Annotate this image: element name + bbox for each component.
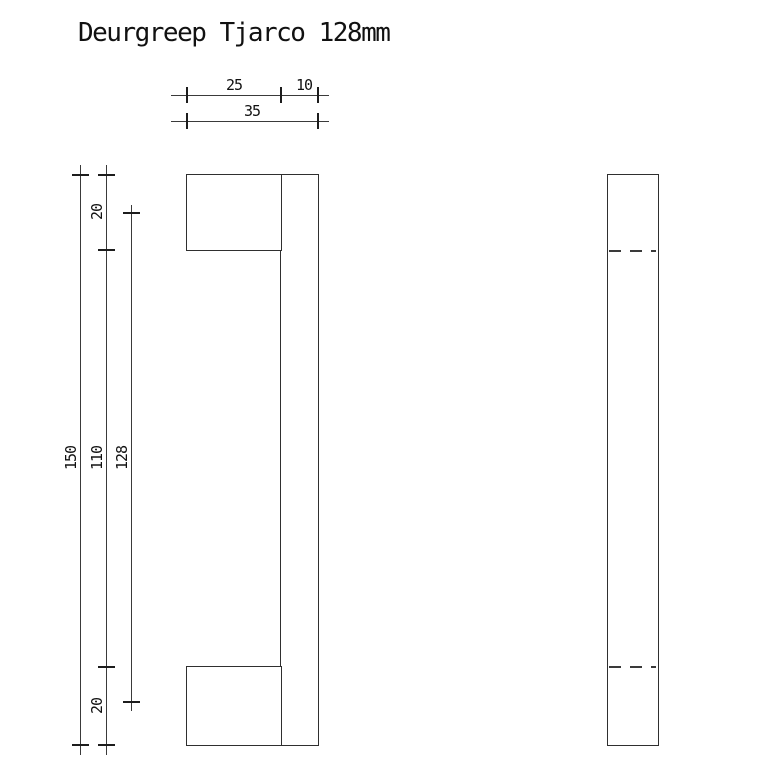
side-view-body <box>607 174 659 746</box>
drawing-canvas: Deurgreep Tjarco 128mm 25 10 35 150 20 <box>0 0 758 763</box>
dim-line <box>80 165 81 755</box>
dim-tick <box>72 744 89 746</box>
dim-tick <box>123 212 140 214</box>
dim-tick <box>98 249 115 251</box>
dim-label-25: 25 <box>226 76 242 94</box>
front-view-bar <box>280 174 319 746</box>
dim-tick <box>317 87 319 103</box>
hidden-edge-top <box>609 250 656 252</box>
dim-label-35: 35 <box>244 102 260 120</box>
dim-tick <box>72 174 89 176</box>
dim-tick <box>98 744 115 746</box>
drawing-title: Deurgreep Tjarco 128mm <box>78 18 389 48</box>
front-view-bottom-mount <box>186 666 282 746</box>
dim-tick <box>123 701 140 703</box>
dim-line <box>171 95 329 96</box>
hidden-edge-bottom <box>609 666 656 668</box>
dim-tick <box>317 113 319 129</box>
dim-tick <box>98 666 115 668</box>
dim-line <box>131 205 132 711</box>
dim-line <box>171 121 329 122</box>
dim-tick <box>280 87 282 103</box>
dim-label-10: 10 <box>296 76 312 94</box>
front-view-top-mount <box>186 174 282 251</box>
dim-tick <box>98 174 115 176</box>
dim-tick <box>186 87 188 103</box>
dim-tick <box>186 113 188 129</box>
